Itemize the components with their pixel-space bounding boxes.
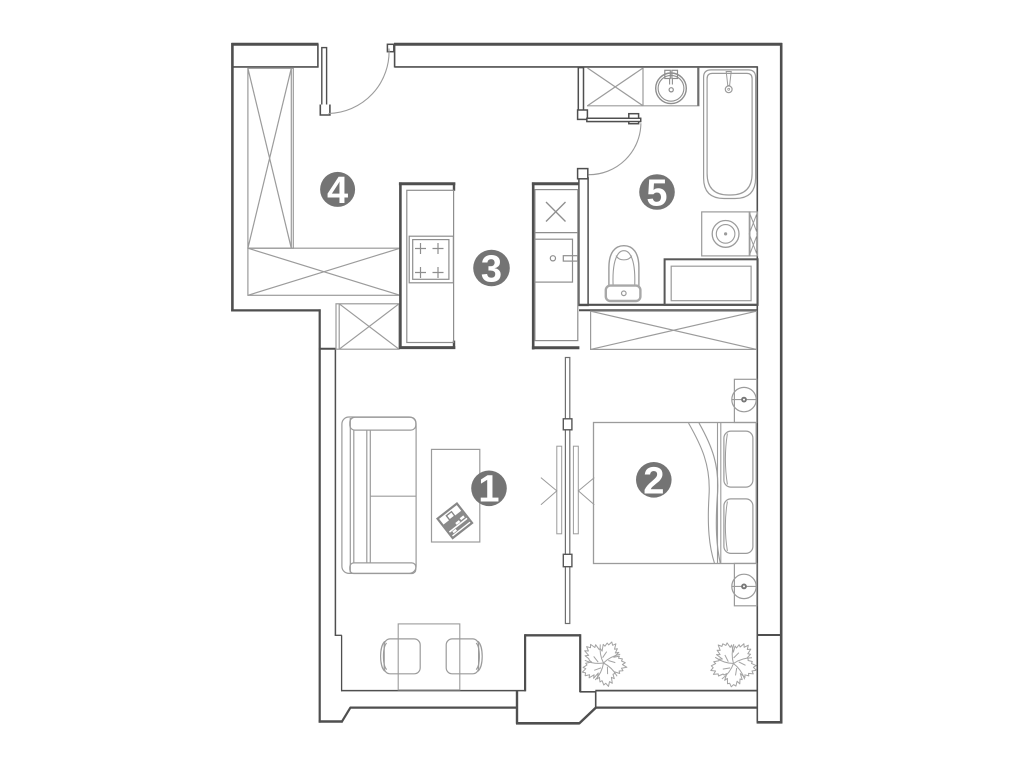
svg-text:2: 2 (643, 460, 664, 502)
svg-text:5: 5 (646, 173, 667, 215)
svg-text:1: 1 (478, 469, 499, 511)
svg-text:3: 3 (481, 249, 502, 291)
svg-text:4: 4 (327, 170, 348, 212)
